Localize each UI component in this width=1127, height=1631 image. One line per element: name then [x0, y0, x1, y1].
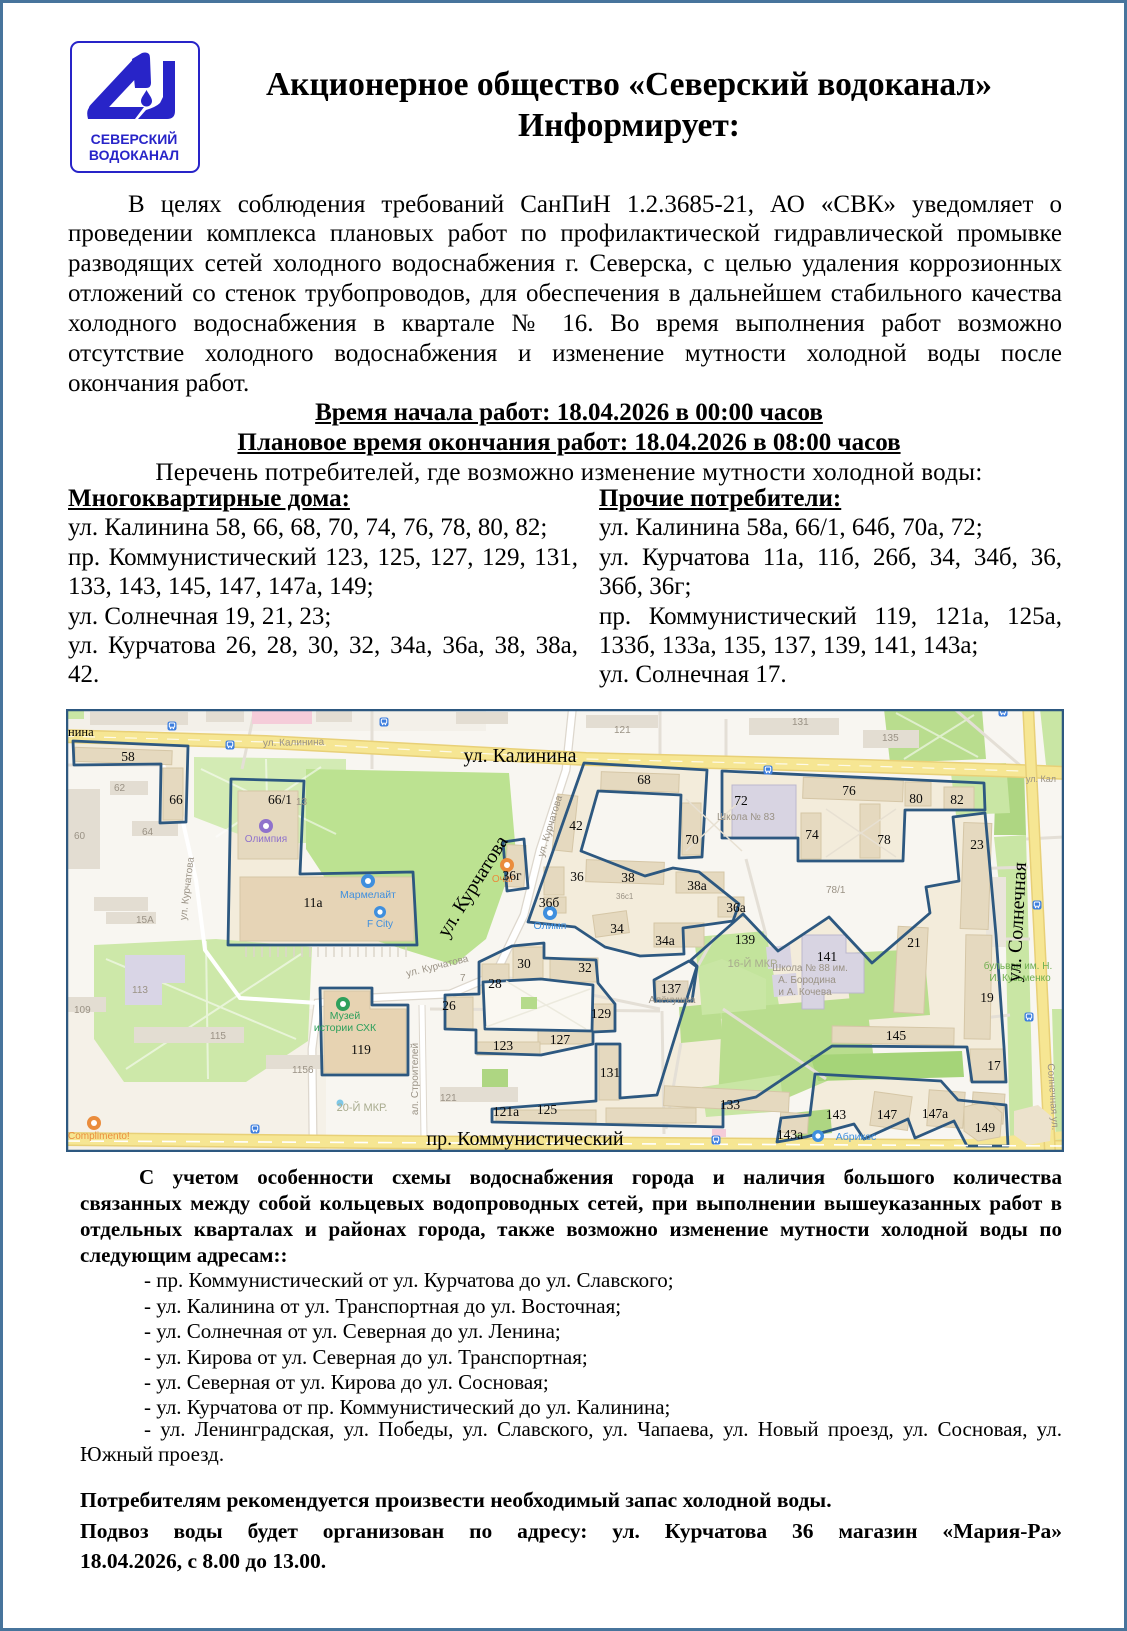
svg-text:32: 32 [578, 960, 592, 975]
svg-text:58: 58 [121, 749, 135, 764]
svg-text:26: 26 [442, 998, 456, 1013]
svg-text:F City: F City [367, 919, 393, 930]
svg-text:Школа № 88 им.: Школа № 88 им. [772, 963, 848, 974]
svg-text:68: 68 [637, 772, 651, 787]
svg-text:131: 131 [792, 717, 809, 728]
svg-text:Олимп: Олимп [534, 920, 567, 932]
svg-text:78: 78 [877, 832, 891, 847]
svg-text:15А: 15А [136, 915, 154, 926]
svg-text:Олимпия: Олимпия [245, 834, 287, 845]
svg-text:истории СХК: истории СХК [314, 1022, 377, 1034]
svg-text:пр. Коммунистический: пр. Коммунистический [426, 1128, 623, 1150]
svg-text:7: 7 [460, 973, 466, 984]
svg-text:ул. Кал: ул. Кал [1026, 774, 1056, 784]
svg-text:76: 76 [842, 783, 856, 798]
svg-text:Школа № 83: Школа № 83 [717, 812, 775, 823]
svg-text:СЕВЕРСКИЙ: СЕВЕРСКИЙ [91, 130, 178, 147]
svg-text:16-Й МКР.: 16-Й МКР. [728, 957, 779, 970]
svg-text:64: 64 [142, 827, 154, 838]
svg-text:147: 147 [877, 1107, 898, 1122]
svg-text:109: 109 [74, 1005, 91, 1016]
svg-text:нина: нина [68, 725, 94, 739]
svg-text:121а: 121а [493, 1104, 519, 1119]
svg-text:34а: 34а [655, 933, 675, 948]
svg-text:143: 143 [826, 1107, 847, 1122]
svg-text:1156: 1156 [292, 1065, 314, 1076]
svg-text:135: 135 [882, 733, 899, 744]
svg-text:ул. Калинина: ул. Калинина [464, 745, 577, 767]
svg-text:19: 19 [980, 990, 994, 1005]
svg-text:74: 74 [805, 827, 819, 842]
svg-text:133: 133 [720, 1097, 741, 1112]
svg-text:34: 34 [610, 921, 624, 936]
svg-text:66/1: 66/1 [268, 792, 292, 807]
svg-text:127: 127 [550, 1032, 571, 1047]
svg-text:139: 139 [735, 932, 756, 947]
svg-text:113: 113 [132, 985, 148, 996]
svg-text:36: 36 [570, 869, 584, 884]
svg-text:21: 21 [907, 935, 921, 950]
svg-text:60: 60 [74, 831, 86, 842]
svg-text:30: 30 [517, 956, 531, 971]
svg-text:121: 121 [614, 725, 631, 736]
svg-text:62: 62 [114, 783, 126, 794]
svg-text:и А. Кочева: и А. Кочева [778, 987, 832, 998]
svg-text:Абрикос: Абрикос [836, 1131, 877, 1143]
svg-text:147а: 147а [922, 1106, 948, 1121]
svg-text:ал. Строителей: ал. Строителей [410, 1043, 421, 1115]
svg-text:23: 23 [970, 837, 984, 852]
svg-text:Мармелайт: Мармелайт [340, 889, 396, 901]
svg-text:137: 137 [661, 981, 682, 996]
svg-text:13: 13 [296, 797, 308, 808]
svg-text:143а: 143а [777, 1127, 803, 1142]
svg-text:121: 121 [440, 1093, 457, 1104]
svg-text:38: 38 [621, 870, 635, 885]
svg-text:36с1: 36с1 [616, 892, 634, 901]
svg-text:ул. Калинина: ул. Калинина [263, 737, 325, 749]
svg-text:145: 145 [886, 1028, 907, 1043]
svg-text:17: 17 [987, 1058, 1001, 1073]
svg-text:129: 129 [591, 1006, 612, 1021]
svg-text:119: 119 [351, 1042, 371, 1057]
svg-text:78/1: 78/1 [826, 885, 846, 896]
svg-text:28: 28 [488, 976, 502, 991]
svg-text:149: 149 [975, 1120, 996, 1135]
svg-text:66: 66 [169, 792, 183, 807]
svg-text:70: 70 [685, 832, 699, 847]
svg-text:141: 141 [817, 949, 837, 964]
svg-text:А. Бородина: А. Бородина [778, 975, 836, 986]
svg-text:11а: 11а [304, 895, 323, 910]
svg-text:20-Й МКР.: 20-Й МКР. [337, 1101, 388, 1114]
svg-text:ВОДОКАНАЛ: ВОДОКАНАЛ [89, 147, 179, 163]
svg-text:125: 125 [537, 1102, 558, 1117]
svg-text:Алёнушка: Алёнушка [649, 995, 696, 1006]
svg-text:Музей: Музей [330, 1010, 361, 1022]
svg-text:42: 42 [569, 818, 583, 833]
svg-text:131: 131 [600, 1065, 620, 1080]
svg-text:36а: 36а [726, 900, 746, 915]
svg-text:82: 82 [950, 792, 964, 807]
svg-text:80: 80 [909, 791, 923, 806]
svg-text:38а: 38а [687, 878, 707, 893]
svg-text:36г: 36г [502, 868, 522, 883]
svg-text:72: 72 [734, 793, 748, 808]
svg-text:Complimento!: Complimento! [68, 1131, 130, 1142]
svg-text:36б: 36б [539, 895, 560, 910]
svg-text:115: 115 [210, 1031, 226, 1042]
svg-text:123: 123 [493, 1038, 514, 1053]
